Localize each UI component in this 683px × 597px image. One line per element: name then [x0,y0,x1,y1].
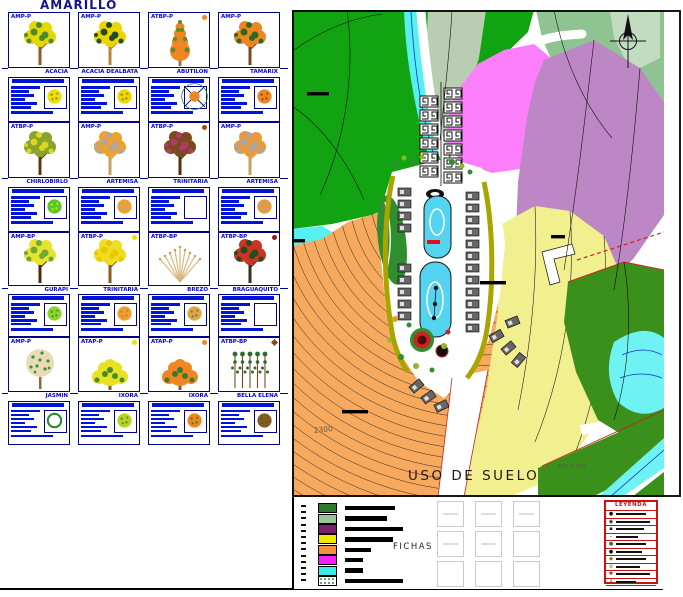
plant-spec-box [8,77,70,122]
building [466,324,479,332]
spec-text-lines [151,85,184,110]
building [466,192,479,200]
page-title: AMARILLO [40,0,117,12]
building [466,312,479,320]
leyenda-label-bar [616,558,646,560]
legend-swatch-row [318,576,403,586]
leyenda-row: – [606,534,656,542]
spec-title-bar [82,79,134,83]
spec-text-lines [11,409,44,434]
spec-bottom-line [11,435,53,438]
plant-elevation-box: AMP-P [78,12,140,68]
plant-spec-box [8,187,70,232]
legend-swatch-row [318,524,403,534]
plant-tree-graphic [12,17,68,67]
ficha-placeholder-box [475,531,502,557]
leyenda-title: LEYENDA [606,502,656,511]
land-use-color-legend [318,503,403,586]
microtext-glyph [301,555,306,557]
legend-swatch-row [318,513,403,523]
spec-bottom-line [81,435,123,438]
legend-label-bar [345,548,371,552]
building [466,228,479,236]
plant-plan-symbol [254,410,277,433]
ficha-placeholder-box [513,501,540,527]
building [398,276,411,284]
plant-plan-symbol [254,303,277,326]
microtext-glyph [301,548,306,550]
plant-spec-box [148,187,210,232]
leyenda-row: ● [606,541,656,549]
plant-card: ATBP-BP BRAGUAQUITO [218,232,280,337]
map-scale-label: ESC. 1:500 [558,464,585,470]
building [398,212,411,220]
plant-card: ATBP-P TRINITARIA [148,122,210,232]
plant-tree-graphic [152,17,208,67]
plant-elevation-box: AMP-P [78,122,140,178]
plant-card: ATAP-P IXORA [78,337,140,445]
microtext-glyph [301,542,306,544]
plant-plan-symbol [44,303,67,326]
spec-bottom-line [151,111,193,114]
plant-card: AMP-BP GURAPI [8,232,70,337]
plant-tree-graphic [222,235,278,285]
garden-center [418,336,427,345]
legend-label-bar [345,516,387,520]
ficha-placeholder-box [437,531,464,557]
legend-color-chip [318,534,337,544]
spec-title-bar [222,79,274,83]
ficha-placeholder-box [437,501,464,527]
plant-card: AMP-P ACACIA [8,12,70,122]
spec-text-lines [151,409,184,434]
building [466,264,479,272]
plant-card: ATBP-P TRINITARIA [78,232,140,337]
leyenda-symbol-icon: ● [606,549,616,555]
spec-title-bar [152,79,204,83]
spec-text-lines [81,409,114,434]
fichas-label: FICHAS [393,542,433,552]
spec-title-bar [12,79,64,83]
leyenda-row: ✱ [606,571,656,579]
legend-label-bar [345,568,363,572]
plant-spec-box [148,77,210,122]
plant-elevation-drawing [152,127,208,177]
ficha-placeholder-box [437,561,464,587]
ficha-placeholder-box [513,561,540,587]
leyenda-row: ✿ [606,564,656,572]
plant-elevation-box: AMP-P [218,122,280,178]
plant-name-label: ACACIA DEALBATA [78,68,140,77]
legend-swatch-row [318,503,403,513]
plant-elevation-drawing [82,235,138,285]
leyenda-row: ◉ [606,519,656,527]
plant-card: AMP-P TAMARIX [218,12,280,122]
spec-text-lines [221,85,254,110]
legend-label-bar [345,506,395,510]
spec-bottom-line [11,328,53,331]
cad-sheet: AMARILLO AMP-P ACACIA AMP-P ACACIA DEALB… [0,0,683,597]
building [398,300,411,308]
legend-swatch-row [318,534,403,544]
spec-title-bar [12,296,64,300]
building [466,240,479,248]
spec-bottom-line [81,221,123,224]
plant-plan-symbol [254,86,277,109]
microtext-glyph [301,536,306,538]
spec-text-lines [81,85,114,110]
plant-card: ATAP-P IXORA [148,337,210,445]
plant-elevation-box: AMP-BP [8,232,70,286]
spec-text-lines [151,195,184,220]
leyenda-label-bar [616,513,646,515]
leyenda-row: ● [606,549,656,557]
building [466,204,479,212]
leyenda-row: ↟ [606,579,656,587]
building [466,252,479,260]
spec-bottom-line [151,221,193,224]
building [466,276,479,284]
spec-text-lines [11,302,44,327]
leyenda-symbol-icon: ✱ [606,571,616,577]
plant-tree-graphic [12,235,68,285]
legend-swatch-row [318,545,403,555]
plant-card: AMP-P ACACIA DEALBATA [78,12,140,122]
microtext-glyph [301,573,306,575]
plant-name-label: JASMIN [8,392,70,401]
pool-dot [433,302,437,306]
plant-elevation-drawing [82,127,138,177]
plant-card: ATBP-BP BREZO [148,232,210,337]
plant-elevation-drawing [152,17,208,67]
spec-title-bar [222,403,274,407]
plant-elevation-drawing [222,17,278,67]
microtext-glyph [301,561,306,563]
spec-title-bar [152,403,204,407]
plant-elevation-box: ATAP-P [148,337,210,392]
plant-plan-symbol [254,196,277,219]
plant-card: AMP-P ARTEMISA [218,122,280,232]
building [466,288,479,296]
spec-title-bar [82,189,134,193]
spec-bottom-line [151,328,193,331]
leyenda-label-bar [616,543,646,545]
pool-upper [424,196,451,258]
spec-title-bar [82,403,134,407]
building [398,288,411,296]
legend-color-chip [318,566,337,576]
plant-spec-box [148,401,210,445]
plant-name-label: TRINITARIA [78,286,140,294]
land-use-map: 2300 [292,10,682,497]
plant-tree-graphic [222,341,278,391]
plant-name-label: ACACIA [8,68,70,77]
spec-text-lines [11,195,44,220]
microtext-glyph [301,524,306,526]
plant-elevation-box: AMP-P [8,337,70,392]
plant-spec-box [148,294,210,337]
leyenda-symbol-icon: ✿ [606,564,616,570]
legend-label-bar [345,527,403,531]
plant-name-label: IXORA [78,392,140,401]
plant-elevation-drawing [82,17,138,67]
leyenda-label-bar [616,581,636,583]
spec-text-lines [221,195,254,220]
legend-swatch-row [318,555,403,565]
plant-spec-box [78,401,140,445]
spec-bottom-line [11,221,53,224]
plant-spec-box [218,401,280,445]
spec-bottom-line [151,435,193,438]
leyenda-label-bar [616,566,640,568]
title-block-strip: FICHAS LEYENDA ●◉▪–●●◆✿✱↟ [292,497,663,589]
vertical-microtext [301,505,306,585]
spec-text-lines [81,302,114,327]
microtext-glyph [301,530,306,532]
spec-text-lines [81,195,114,220]
pool-red-marker [427,240,440,244]
plant-tree-graphic [152,235,208,285]
plant-name-label: BELLA ELENA [218,392,280,401]
microtext-glyph [301,505,306,507]
pool-dot [434,286,438,290]
plant-elevation-drawing [12,17,68,67]
plant-plan-symbol [44,410,67,433]
building [398,224,411,232]
plant-catalog: AMP-P ACACIA AMP-P ACACIA DEALBATA [8,12,280,445]
plant-plan-symbol [184,196,207,219]
plant-tree-graphic [222,17,278,67]
plant-name-label: BREZO [148,286,210,294]
leyenda-symbol-icon: ◉ [606,519,616,525]
plant-elevation-box: ATBP-P [148,122,210,178]
spec-title-bar [152,189,204,193]
plant-elevation-box: ATBP-P [148,12,210,68]
plant-tree-graphic [82,235,138,285]
fichas-grid [437,501,540,587]
spec-title-bar [152,296,204,300]
legend-color-chip [318,524,337,534]
plant-tree-graphic [222,127,278,177]
spec-title-bar [222,189,274,193]
leyenda-label-bar [616,536,638,538]
legend-label-bar [345,558,363,562]
plant-name-label: ABUTILON [148,68,210,77]
plant-tree-graphic [82,17,138,67]
plant-spec-box [78,187,140,232]
leyenda-label-bar [616,573,650,575]
spec-bottom-line [221,111,263,114]
spec-title-bar [82,296,134,300]
legend-swatch-row [318,565,403,575]
plant-elevation-drawing [152,341,208,391]
microtext-glyph [301,517,306,519]
leyenda-symbol-icon: ● [606,541,616,547]
building [398,188,411,196]
leyenda-symbol-icon: ● [606,511,616,517]
plant-elevation-drawing [82,341,138,391]
plant-tree-graphic [152,127,208,177]
plant-elevation-box: AMP-P [8,12,70,68]
leyenda-row: ◆ [606,556,656,564]
leyenda-label-bar [616,551,642,553]
building [398,312,411,320]
ficha-placeholder-box [475,501,502,527]
building [466,216,479,224]
plant-plan-symbol [44,196,67,219]
pool-dot [432,316,436,320]
plant-elevation-box: ATBP-P [78,232,140,286]
ficha-placeholder-box [475,561,502,587]
plant-elevation-drawing [222,235,278,285]
plant-spec-box [78,77,140,122]
plant-name-label: CHIRLOBIRLO [8,178,70,187]
map-title-label: USO DE SUELO [408,468,539,484]
plant-plan-symbol [114,196,137,219]
plant-elevation-drawing [222,341,278,391]
plant-plan-symbol [184,410,207,433]
plant-tree-graphic [12,127,68,177]
plant-tree-graphic [82,127,138,177]
plant-name-label: TAMARIX [218,68,280,77]
plant-elevation-box: ATBP-BP [218,232,280,286]
leyenda-box: LEYENDA ●◉▪–●●◆✿✱↟ [604,500,658,584]
plant-plan-symbol [44,86,67,109]
plant-tree-graphic [82,341,138,391]
plant-elevation-box: ATBP-BP [148,232,210,286]
legend-color-chip [318,503,337,513]
plant-name-label: ARTEMISA [78,178,140,187]
spec-bottom-line [81,328,123,331]
leyenda-symbol-icon: ◆ [606,556,616,562]
plant-plan-symbol [184,303,207,326]
leyenda-symbol-icon: ▪ [606,526,616,532]
ficha-placeholder-box [513,531,540,557]
plant-card: AMP-P JASMIN [8,337,70,445]
spec-text-lines [151,302,184,327]
plant-card: ATBP-P ABUTILON [148,12,210,122]
plant-spec-box [78,294,140,337]
plant-name-label: IXORA [148,392,210,401]
microtext-glyph [301,567,306,569]
plant-elevation-box: ATBP-BP [218,337,280,392]
spec-title-bar [12,403,64,407]
plant-spec-box [8,294,70,337]
spec-bottom-line [11,111,53,114]
microtext-glyph [301,579,306,581]
spec-title-bar [12,189,64,193]
plant-elevation-box: ATAP-P [78,337,140,392]
plant-tree-graphic [12,341,68,391]
leyenda-label-bar [616,521,650,523]
legend-color-chip [318,545,337,555]
plant-elevation-box: AMP-P [218,12,280,68]
plant-plan-symbol [114,303,137,326]
plant-tree-graphic [152,341,208,391]
legend-color-chip [318,576,337,586]
leyenda-row: ▪ [606,526,656,534]
building [398,264,411,272]
building [466,300,479,308]
plant-name-label: ARTEMISA [218,178,280,187]
spec-text-lines [221,302,254,327]
plant-spec-box [218,77,280,122]
plant-spec-box [8,401,70,445]
leyenda-symbol-icon: – [606,534,616,540]
spec-bottom-line [221,221,263,224]
spec-text-lines [11,85,44,110]
plant-card: AMP-P ARTEMISA [78,122,140,232]
spec-bottom-line [221,435,263,438]
plant-name-label: BRAGUAQUITO [218,286,280,294]
legend-color-chip [318,555,337,565]
leyenda-symbol-icon: ↟ [606,579,616,585]
plant-elevation-drawing [12,127,68,177]
plant-elevation-drawing [222,127,278,177]
leyenda-label-bar [616,528,644,530]
plant-elevation-box: ATBP-P [8,122,70,178]
plant-card: ATBP-P CHIRLOBIRLO [8,122,70,232]
building [398,200,411,208]
plant-plan-symbol [114,410,137,433]
plant-name-label: TRINITARIA [148,178,210,187]
plant-spec-box [218,294,280,337]
spec-text-lines [221,409,254,434]
plant-plan-symbol [114,86,137,109]
legend-label-bar [345,537,393,541]
plant-card: ATBP-BP BELLA ELENA [218,337,280,445]
leyenda-row: ● [606,511,656,519]
spec-title-bar [222,296,274,300]
spec-bottom-line [81,111,123,114]
plant-elevation-drawing [12,235,68,285]
plant-name-label: GURAPI [8,286,70,294]
pool-deck-oval-inner [431,192,440,196]
legend-label-bar [345,579,403,583]
plant-plan-symbol [184,86,207,109]
spec-bottom-line [221,328,263,331]
plant-elevation-drawing [12,341,68,391]
legend-color-chip [318,514,337,524]
microtext-glyph [301,511,306,513]
plant-elevation-drawing [152,235,208,285]
plant-spec-box [218,187,280,232]
